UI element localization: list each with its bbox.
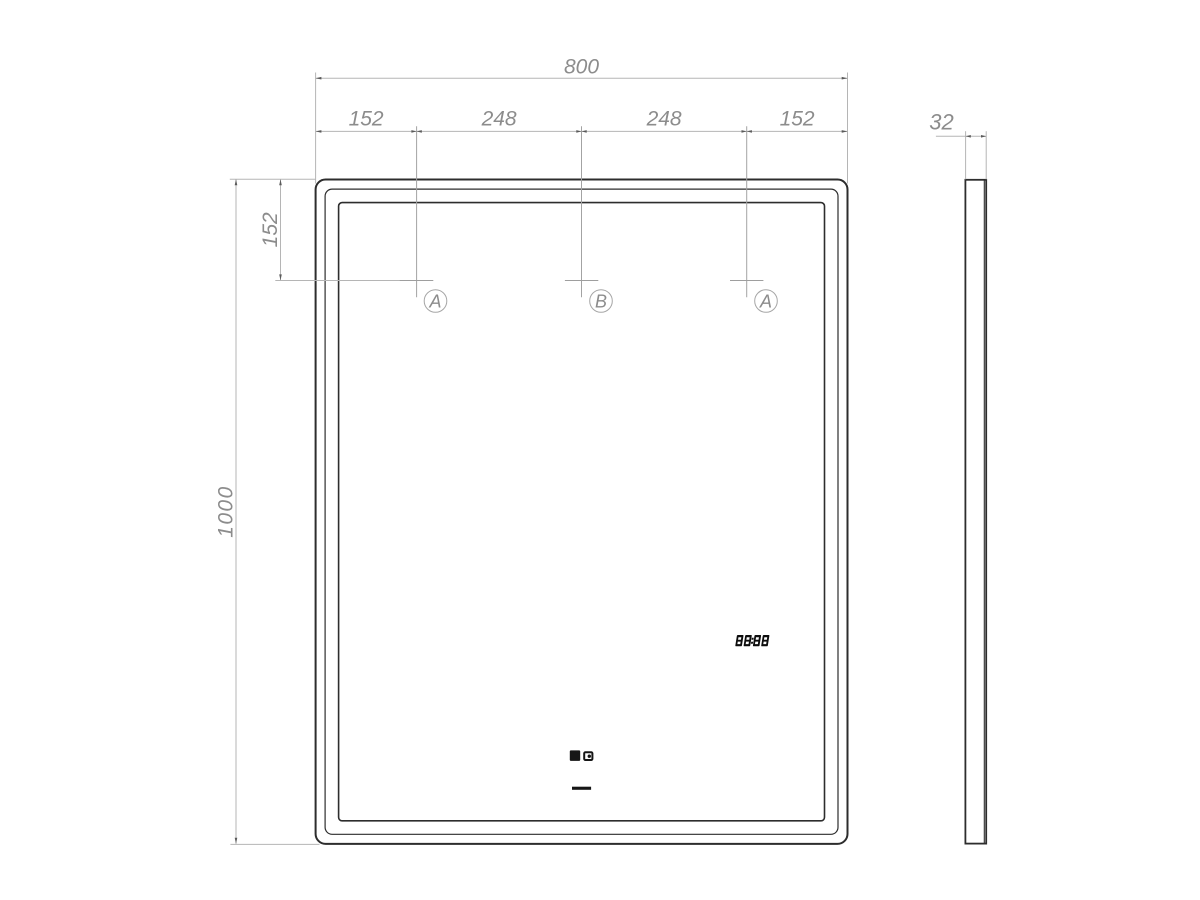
- svg-text:A: A: [759, 291, 772, 311]
- svg-text:248: 248: [646, 108, 682, 131]
- svg-text:152: 152: [780, 108, 815, 131]
- svg-text:152: 152: [349, 108, 384, 131]
- svg-text:B: B: [595, 291, 607, 311]
- svg-text:A: A: [428, 291, 441, 311]
- svg-text:32: 32: [929, 110, 953, 135]
- svg-text:152: 152: [259, 212, 282, 247]
- svg-text:800: 800: [564, 56, 599, 79]
- svg-text:248: 248: [481, 108, 517, 131]
- svg-text:1000: 1000: [215, 485, 238, 537]
